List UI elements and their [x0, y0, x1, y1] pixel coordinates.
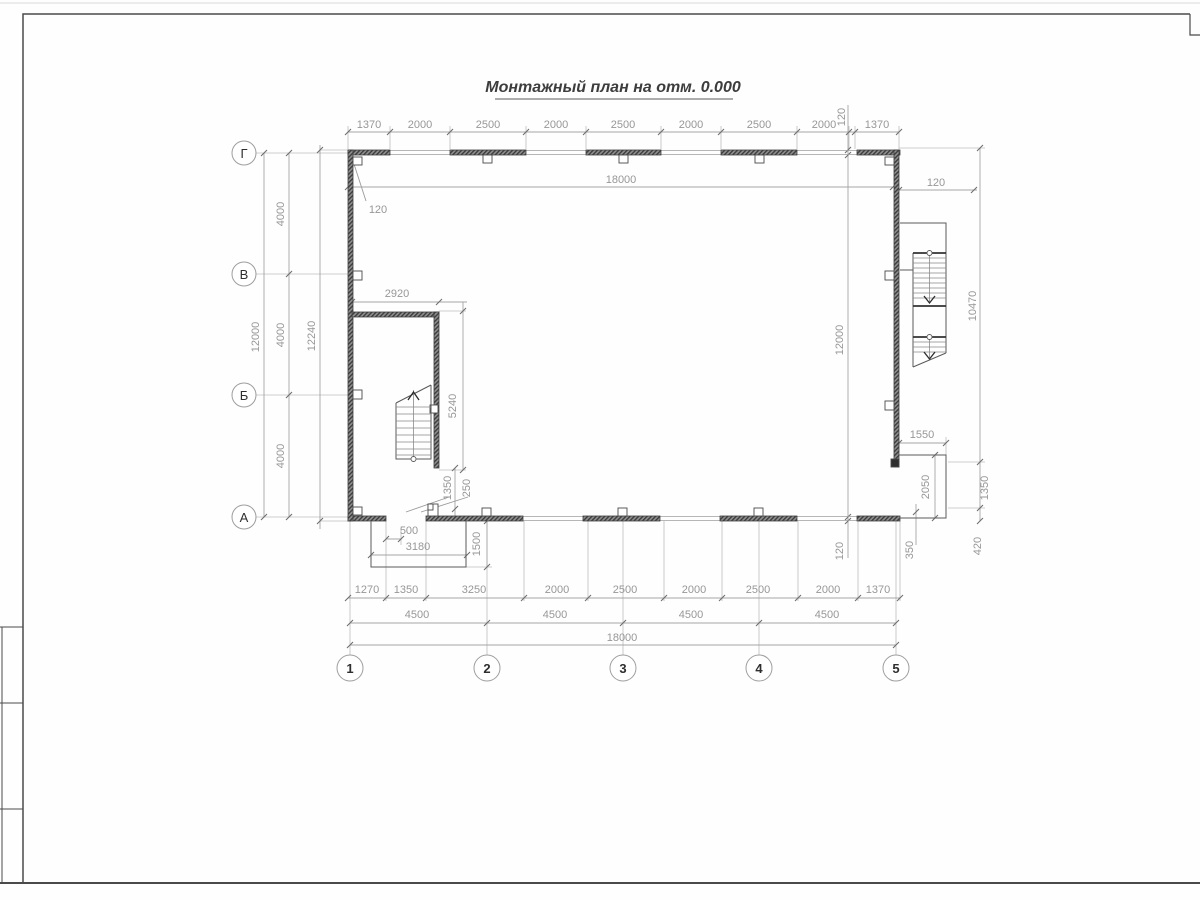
dim-bot-7: 2500 [746, 584, 770, 596]
drawing-title: Монтажный план на отм. 0.000 [485, 79, 741, 99]
axis-col-5: 5 [892, 661, 899, 676]
dim-left-span-2: 4000 [275, 323, 287, 347]
dimensions-bottom: 1270 1350 3250 2000 2500 2000 2500 2000 … [355, 584, 890, 644]
door-jamb-step [428, 504, 433, 510]
drawing-page: Монтажный план на отм. 0.000 [0, 0, 1200, 900]
dim-top-4: 2000 [544, 119, 568, 131]
dim-top-2: 2000 [408, 119, 432, 131]
stair-right [900, 223, 946, 367]
wall-top-1 [348, 150, 390, 155]
dim-top-1: 1370 [357, 119, 381, 131]
axis-col-4: 4 [755, 661, 763, 676]
dim-left-total: 12000 [250, 322, 262, 353]
stair-left-start-circle [411, 457, 416, 462]
axis-bubbles: Г В Б А 1 2 3 4 5 [232, 141, 909, 681]
dim-stairwell-width: 2920 [385, 288, 409, 300]
dim-left-span-3: 4000 [275, 444, 287, 468]
wall-right [894, 150, 899, 467]
dim-span-3: 4500 [679, 609, 703, 621]
dim-top-6: 2000 [679, 119, 703, 131]
axis-row-b: Б [240, 388, 249, 403]
page-title: Монтажный план на отм. 0.000 [485, 79, 741, 96]
dim-bot-3: 3250 [462, 584, 486, 596]
dim-porch-width: 3180 [406, 541, 430, 553]
axis-row-v: В [240, 267, 249, 282]
dim-top-10: 1370 [865, 119, 889, 131]
dim-left-span-1: 4000 [275, 202, 287, 226]
dimensions-left: 12000 4000 4000 4000 12240 [250, 202, 318, 468]
dim-top-right-offset: 120 [927, 177, 945, 189]
dim-bot-4: 2000 [545, 584, 569, 596]
dim-top-3: 2500 [476, 119, 500, 131]
dim-top-total: 18000 [606, 174, 637, 186]
wall-top-4 [721, 150, 797, 155]
wall-stairwell-vertical [434, 312, 439, 468]
dim-right-offset: 350 [904, 541, 916, 559]
dim-right-outer: 10470 [967, 291, 979, 322]
dim-top-8: 2000 [812, 119, 836, 131]
dim-top-5: 2500 [611, 119, 635, 131]
dimensions-top: 1370 2000 2500 2000 2500 2000 2500 2000 … [357, 108, 945, 216]
dim-top-7: 2500 [747, 119, 771, 131]
sheet-frame [0, 3, 1200, 883]
dim-bot-6: 2000 [682, 584, 706, 596]
dim-stairwell-b: 250 [461, 479, 473, 497]
wall-top-2 [450, 150, 526, 155]
column-right-end [891, 459, 899, 467]
wall-stairwell-horizontal [352, 312, 439, 317]
dim-right-seg-b: 420 [972, 537, 984, 555]
axis-row-a: А [240, 510, 249, 525]
axis-col-3: 3 [619, 661, 626, 676]
dim-bot-2: 1350 [394, 584, 418, 596]
window-opening-lines [390, 151, 857, 521]
floor-plan-canvas: Монтажный план на отм. 0.000 [0, 0, 1200, 900]
walls [348, 150, 900, 521]
wall-bottom-4 [720, 516, 797, 521]
dim-bot-1: 1270 [355, 584, 379, 596]
wall-bottom-1 [348, 516, 386, 521]
wall-top-5 [857, 150, 900, 155]
dim-right-offset-bottom: 120 [834, 542, 846, 560]
axis-col-1: 1 [346, 661, 353, 676]
stair-left [396, 385, 431, 462]
axis-col-2: 2 [483, 661, 490, 676]
wall-bottom-3 [583, 516, 660, 521]
dim-span-4: 4500 [815, 609, 839, 621]
wall-bottom-5 [857, 516, 900, 521]
dim-left-outer: 12240 [306, 321, 318, 352]
wall-top-3 [586, 150, 661, 155]
dim-right-seg-a: 1350 [979, 476, 991, 500]
dim-bot-8: 2000 [816, 584, 840, 596]
dim-landing-width: 1550 [910, 429, 934, 441]
dim-right-total: 12000 [834, 325, 846, 356]
dim-porch-offset: 500 [400, 525, 418, 537]
dim-span-2: 4500 [543, 609, 567, 621]
dim-porch-depth: 1500 [471, 532, 483, 556]
dim-stairwell-depth: 5240 [447, 394, 459, 418]
dim-bottom-total: 18000 [607, 632, 638, 644]
extension-lines [256, 126, 985, 655]
dim-stairwell-a: 1350 [442, 476, 454, 500]
wall-left [348, 150, 353, 521]
wall-bottom-2 [426, 516, 523, 521]
dim-landing-depth: 2050 [920, 475, 932, 499]
dim-bot-5: 2500 [613, 584, 637, 596]
dim-wall-thickness: 120 [369, 204, 387, 216]
dim-span-1: 4500 [405, 609, 429, 621]
dim-top-9: 120 [836, 108, 848, 126]
axis-row-g: Г [240, 146, 247, 161]
dim-bot-9: 1370 [866, 584, 890, 596]
